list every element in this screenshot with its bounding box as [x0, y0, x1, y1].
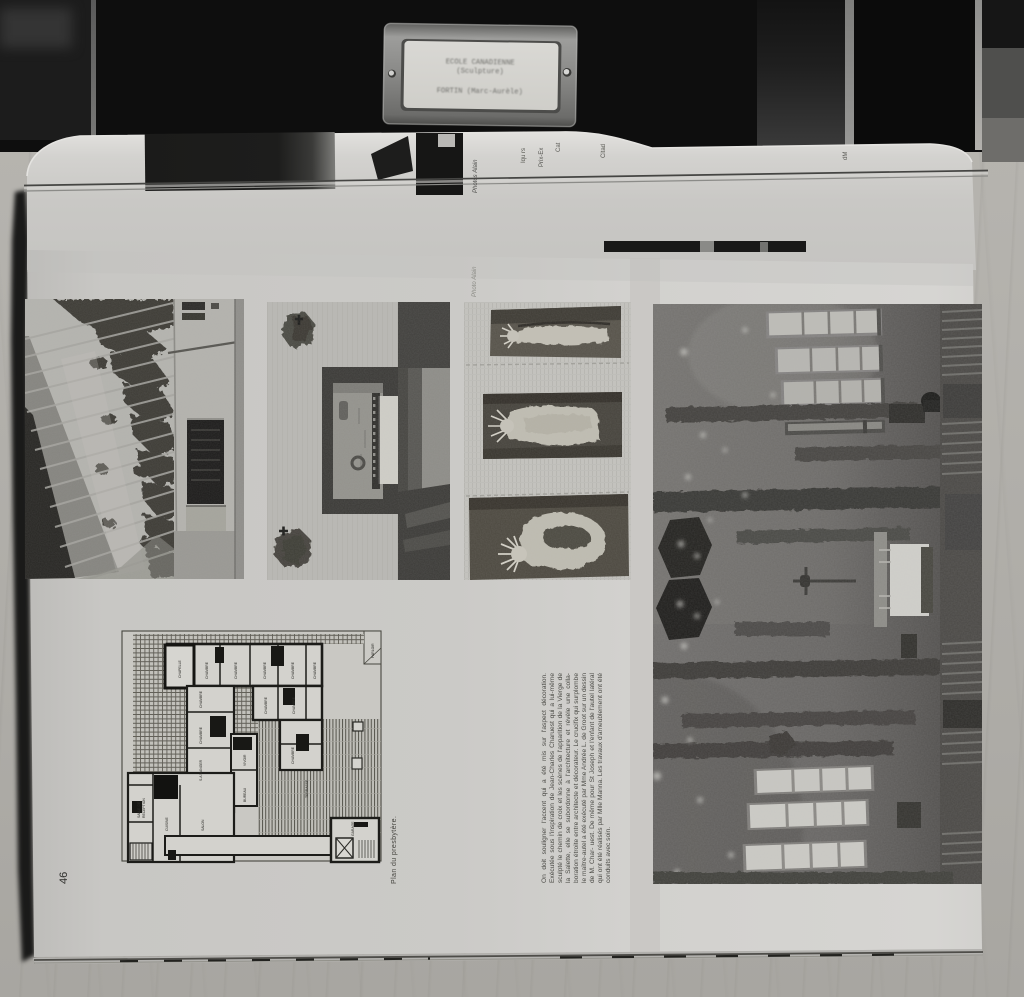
svg-text:SALLE DE: SALLE DE	[137, 801, 141, 818]
svg-text:BUREAU: BUREAU	[243, 787, 247, 802]
svg-text:FORTIN (Marc-Aurèle): FORTIN (Marc-Aurèle)	[437, 87, 523, 96]
svg-text:CHAMBRE: CHAMBRE	[199, 726, 203, 744]
svg-text:CHAPELLE: CHAPELLE	[178, 660, 182, 678]
svg-text:SALON: SALON	[201, 819, 205, 831]
svg-text:CHAMBRE: CHAMBRE	[263, 661, 267, 679]
svg-text:CHAMBRE: CHAMBRE	[234, 661, 238, 679]
svg-text:CHAMBRE: CHAMBRE	[291, 661, 295, 679]
svg-text:PARLOIR: PARLOIR	[371, 643, 375, 658]
svg-text:CUISINE: CUISINE	[165, 817, 169, 831]
svg-text:GARAGE: GARAGE	[351, 821, 355, 836]
svg-text:TERRASSE: TERRASSE	[305, 779, 309, 798]
svg-text:CHAMBRE: CHAMBRE	[291, 746, 295, 764]
svg-text:S.A MANGER: S.A MANGER	[199, 759, 203, 781]
svg-text:CHAMBRE: CHAMBRE	[205, 661, 209, 679]
svg-text:(Sculpture): (Sculpture)	[456, 68, 504, 77]
svg-text:VIVOIR: VIVOIR	[243, 754, 247, 766]
svg-text:CHAMBRE: CHAMBRE	[313, 661, 317, 679]
svg-text:ECOLE CANADIENNE: ECOLE CANADIENNE	[446, 58, 515, 67]
svg-text:CHAMBRE: CHAMBRE	[199, 690, 203, 708]
svg-text:CHAMBRE: CHAMBRE	[292, 696, 296, 714]
svg-text:RECEPTION: RECEPTION	[142, 798, 146, 818]
svg-text:CHAMBRE: CHAMBRE	[264, 696, 268, 714]
